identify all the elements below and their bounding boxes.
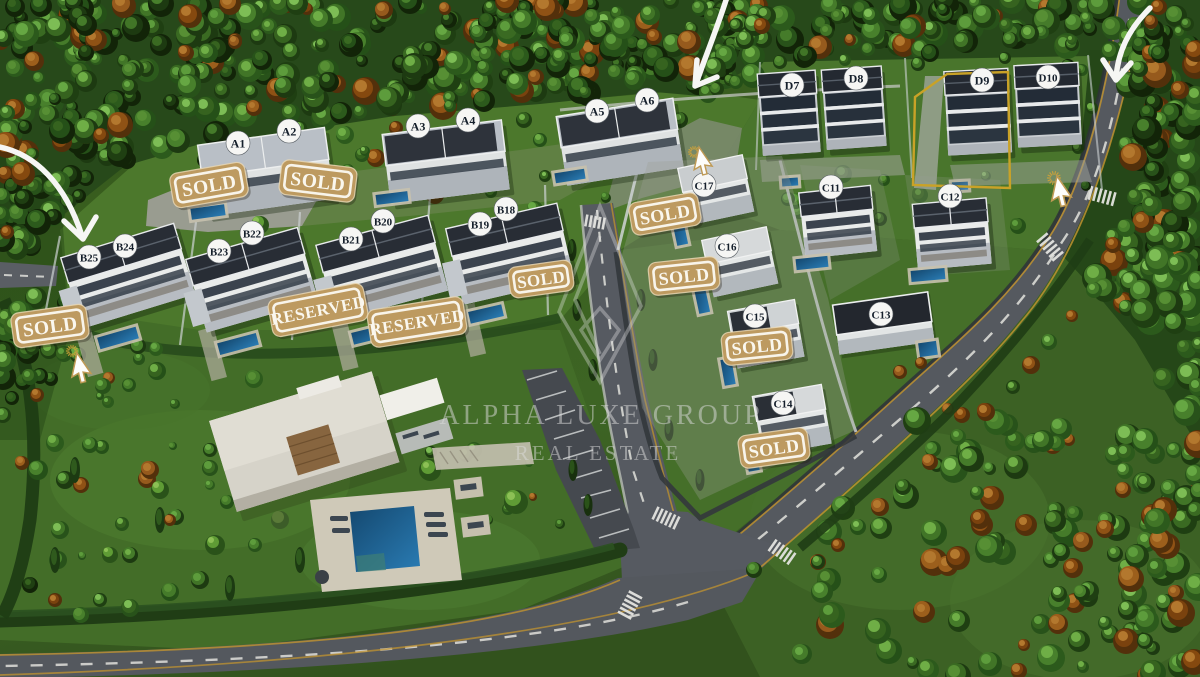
- svg-text:C14: C14: [774, 398, 793, 410]
- svg-text:C13: C13: [872, 309, 891, 321]
- svg-text:REAL ESTATE: REAL ESTATE: [515, 441, 681, 465]
- svg-text:C15: C15: [746, 311, 765, 323]
- svg-text:C12: C12: [941, 191, 960, 203]
- svg-text:D10: D10: [1039, 72, 1058, 84]
- svg-text:D9: D9: [975, 73, 990, 87]
- svg-text:A6: A6: [640, 93, 655, 107]
- svg-text:C16: C16: [718, 241, 737, 253]
- svg-text:A4: A4: [461, 113, 476, 127]
- svg-text:C17: C17: [695, 180, 714, 192]
- svg-text:B19: B19: [471, 219, 490, 231]
- svg-text:B24: B24: [116, 241, 135, 253]
- svg-text:A5: A5: [590, 104, 605, 118]
- svg-text:B18: B18: [497, 204, 516, 216]
- svg-text:B25: B25: [80, 252, 99, 264]
- svg-text:A1: A1: [231, 136, 246, 150]
- svg-text:ALPHA LUXE GROUP: ALPHA LUXE GROUP: [439, 400, 762, 431]
- svg-text:B23: B23: [210, 246, 229, 258]
- svg-text:A2: A2: [282, 124, 297, 138]
- svg-text:B21: B21: [342, 234, 360, 246]
- svg-text:A3: A3: [411, 119, 426, 133]
- svg-text:C11: C11: [822, 182, 840, 194]
- svg-text:B22: B22: [243, 228, 262, 240]
- svg-text:D8: D8: [849, 71, 864, 85]
- svg-text:B20: B20: [374, 216, 393, 228]
- svg-text:D7: D7: [785, 78, 800, 92]
